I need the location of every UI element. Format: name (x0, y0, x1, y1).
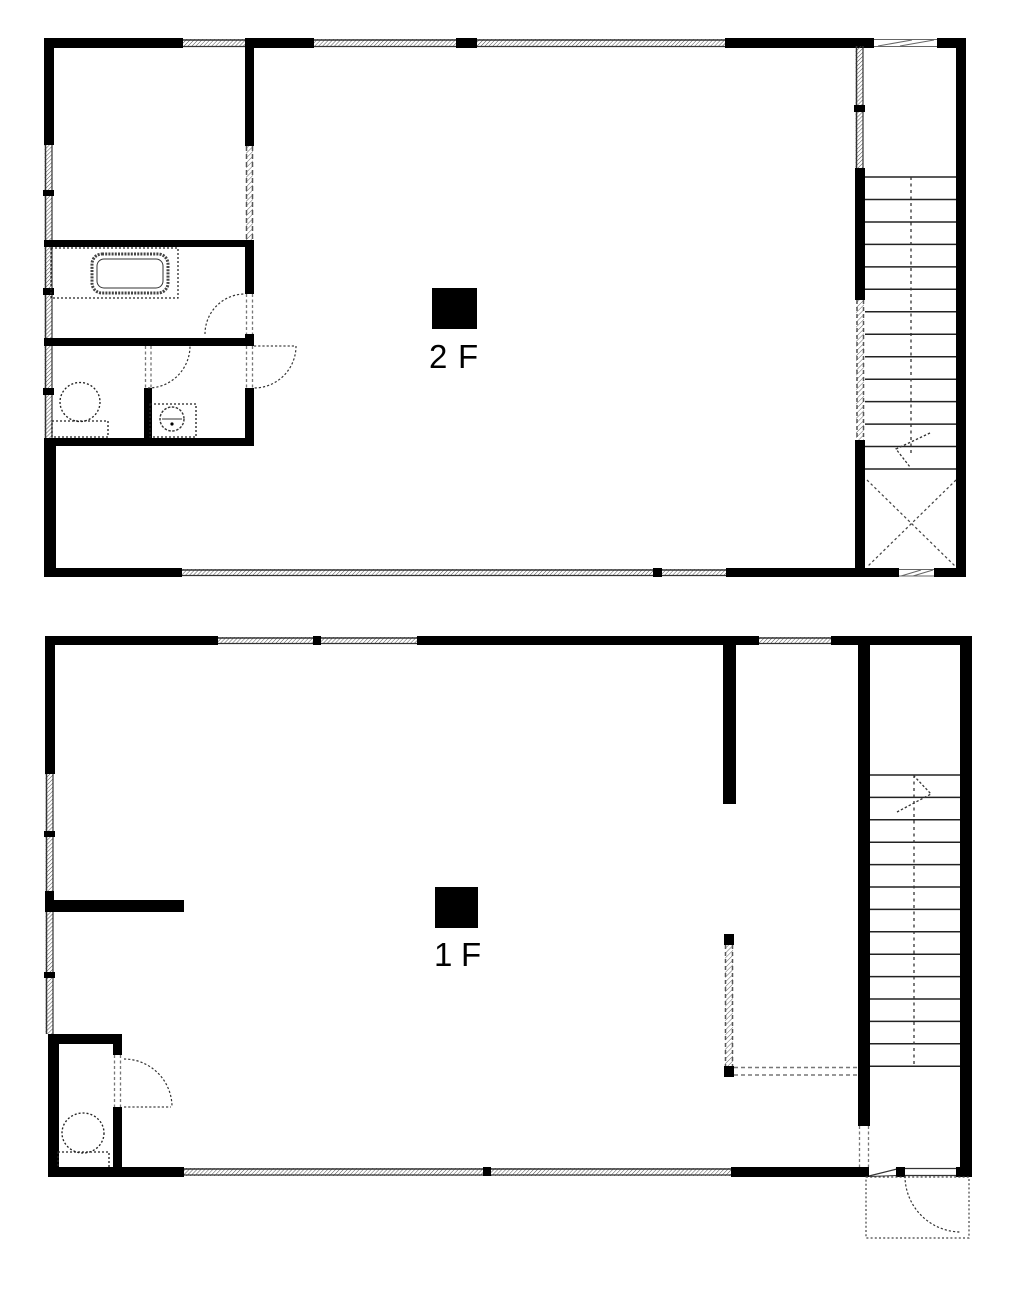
svg-text:F: F (458, 338, 478, 375)
svg-text:1: 1 (434, 936, 452, 973)
svg-text:2: 2 (429, 338, 447, 375)
svg-text:F: F (461, 936, 481, 973)
